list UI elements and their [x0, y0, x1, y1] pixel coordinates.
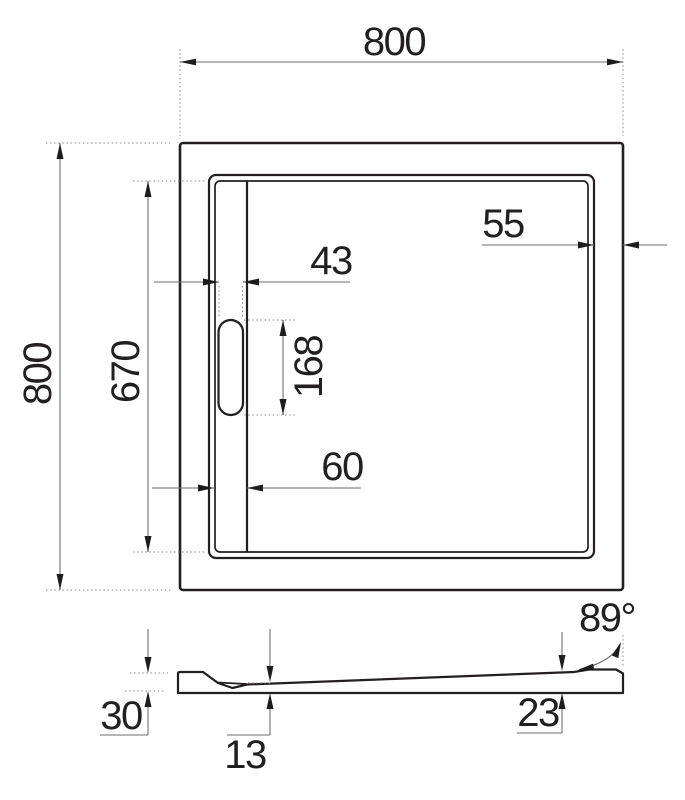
- dim-label-rim-width: 55: [482, 202, 524, 246]
- dim-label-base-thickness: 13: [224, 733, 266, 777]
- dim-label-slot-width: 43: [310, 239, 352, 283]
- dim-label-wall-angle: 89°: [579, 596, 635, 640]
- dim-label-slot-length: 168: [287, 336, 331, 398]
- dim-label-channel-length: 670: [104, 341, 148, 403]
- dim-label-outer-height: 800: [16, 343, 60, 405]
- shower-tray-technical-drawing: 800 800 670 55 43: [0, 0, 685, 800]
- dim-label-edge-height: 23: [517, 691, 559, 735]
- dim-label-outer-width: 800: [363, 20, 425, 64]
- drawing-canvas: 800 800 670 55 43: [0, 0, 685, 800]
- dim-label-overall-height: 30: [100, 694, 142, 738]
- dim-label-channel-width: 60: [321, 445, 363, 489]
